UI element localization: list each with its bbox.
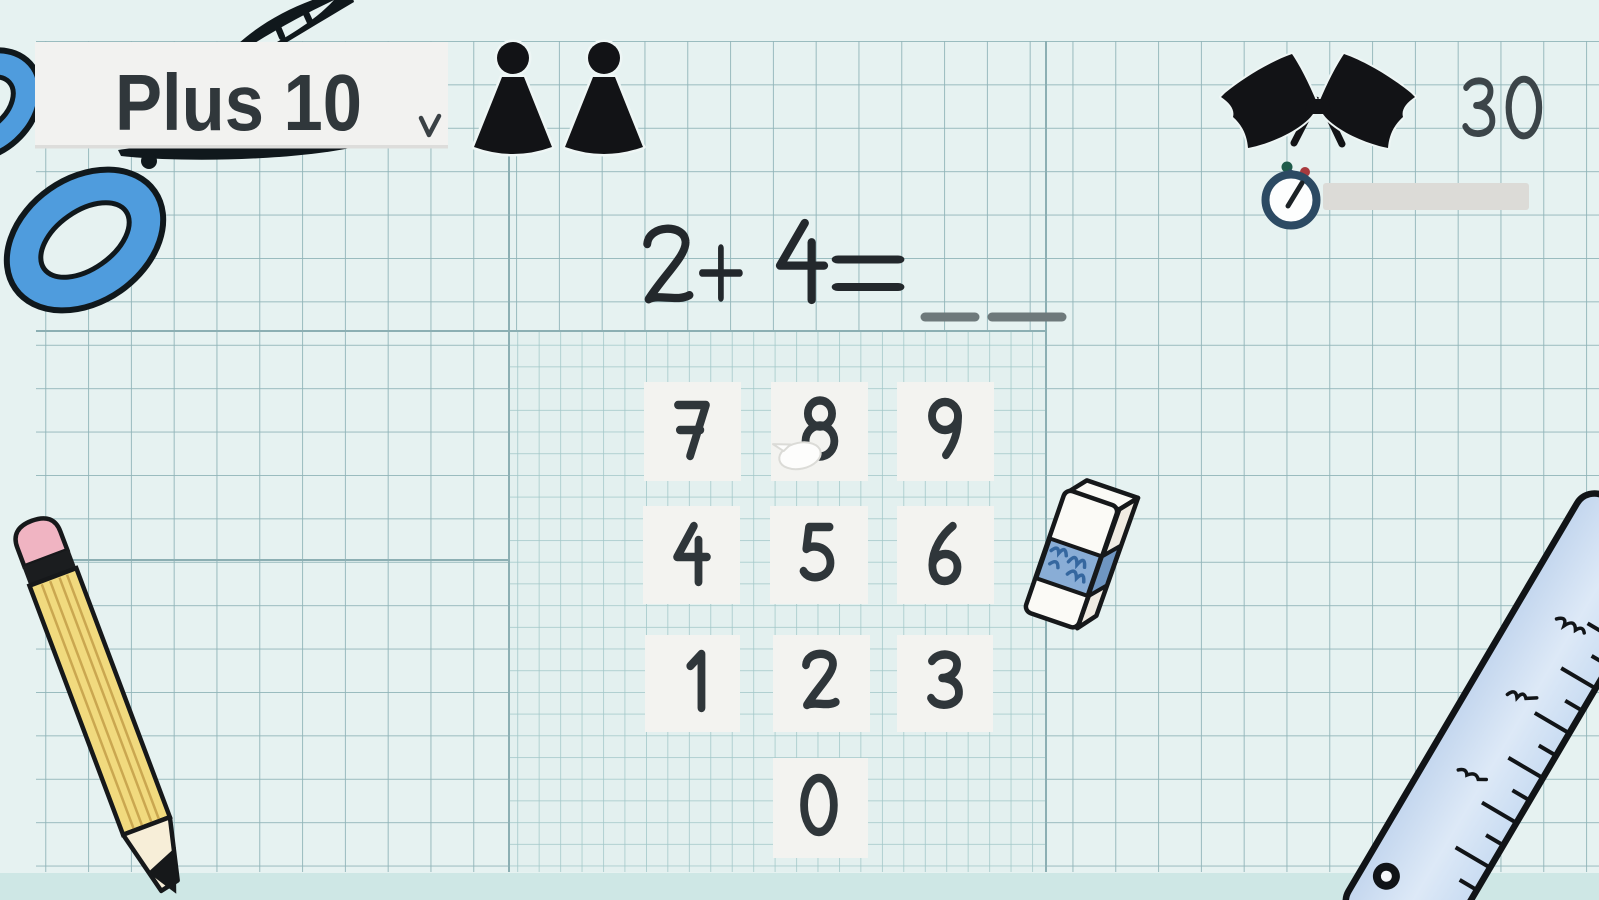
svg-text:Plus 10: Plus 10: [115, 58, 362, 147]
